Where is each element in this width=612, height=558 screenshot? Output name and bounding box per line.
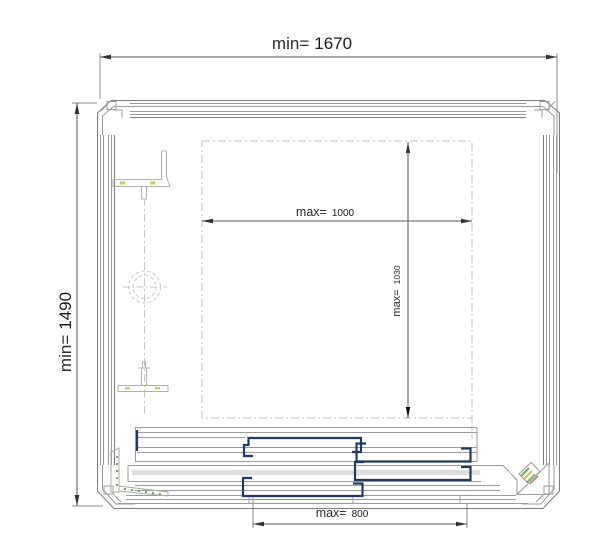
label-opening-height: max= 1030 xyxy=(391,265,403,316)
corner-connector-top-left xyxy=(98,101,131,136)
guide-bracket-lower xyxy=(118,362,168,392)
track-assembly-upper xyxy=(135,428,477,462)
dim-opening-height xyxy=(406,142,410,418)
frame-right-rail xyxy=(544,135,560,465)
label-panel-width-value: 800 xyxy=(352,509,369,520)
dim-opening-width xyxy=(202,219,472,224)
guide-bracket-upper xyxy=(113,151,170,199)
screen-panel-profile-4 xyxy=(243,478,363,496)
label-overall-width-value: 1670 xyxy=(314,34,352,54)
label-overall-height: min= 1490 xyxy=(56,292,76,372)
technical-drawing-canvas: min= 1670 min= 1490 max= 1000 max= 1030 … xyxy=(0,0,612,558)
corner-connector-top-right xyxy=(526,101,560,136)
frame-left-rail xyxy=(98,135,115,465)
frame-drawing-svg xyxy=(0,0,612,558)
label-overall-height-value: 1490 xyxy=(56,292,76,330)
label-opening-width-value: 1000 xyxy=(332,208,354,219)
screen-panel-profiles xyxy=(137,430,471,496)
label-opening-width-prefix: max= xyxy=(296,205,327,219)
label-opening-height-value: 1030 xyxy=(392,265,402,284)
dim-overall-width xyxy=(100,53,557,173)
label-overall-height-prefix: min= xyxy=(56,335,76,372)
dim-overall-height xyxy=(72,103,103,506)
label-panel-width: max= 800 xyxy=(316,506,369,520)
max-opening-outline xyxy=(202,141,472,441)
label-opening-height-prefix: max= xyxy=(391,289,403,316)
frame-top-rail xyxy=(130,101,526,118)
label-opening-width: max= 1000 xyxy=(296,205,354,219)
label-overall-width-prefix: min= xyxy=(272,34,309,54)
label-panel-width-prefix: max= xyxy=(316,506,347,520)
label-overall-width: min= 1670 xyxy=(272,34,352,54)
